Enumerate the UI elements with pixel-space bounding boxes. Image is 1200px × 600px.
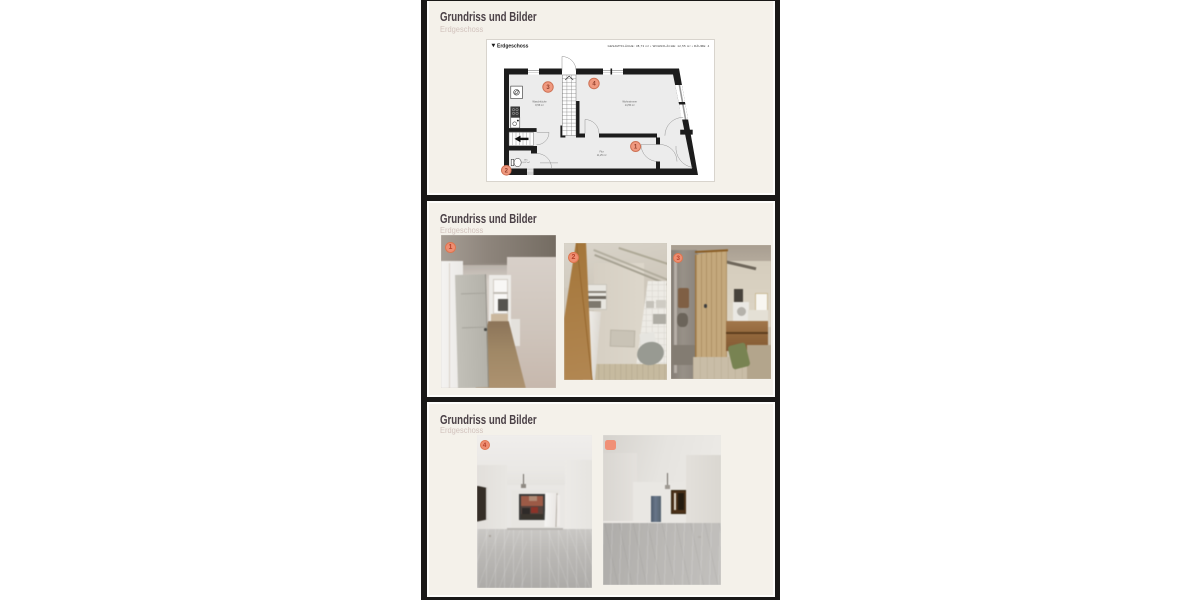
svg-text:WC: WC (524, 159, 528, 161)
svg-text:14,55 m²: 14,55 m² (625, 103, 635, 106)
svg-text:11,25 m²: 11,25 m² (597, 153, 607, 156)
svg-text:Erdgeschoss: Erdgeschoss (497, 43, 529, 49)
svg-text:8,55 m²: 8,55 m² (535, 103, 544, 106)
svg-text:GESAMTFLÄCHE: 38,73 m² • WOHNF: GESAMTFLÄCHE: 38,73 m² • WOHNFLÄCHE: 12,… (608, 43, 710, 47)
svg-text:4,07 m²: 4,07 m² (522, 161, 530, 164)
